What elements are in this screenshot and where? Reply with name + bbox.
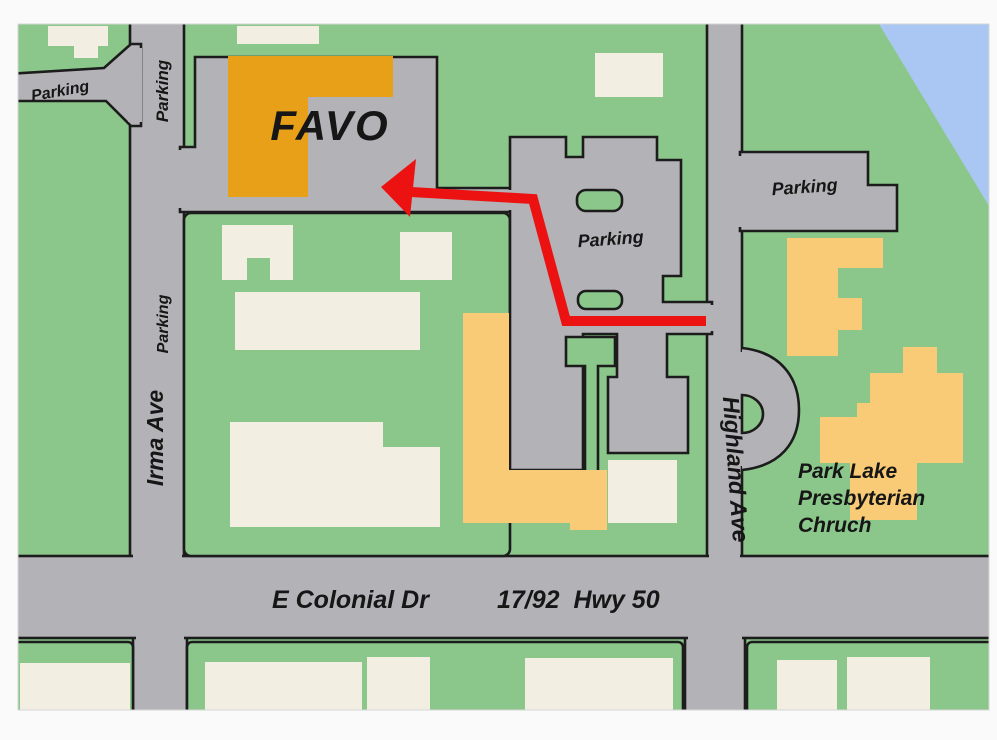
building-north-center [595,53,663,97]
building-nw-1b [74,46,98,58]
building-campus-south [608,460,677,523]
road-junction-patch [136,633,184,644]
label-church-line1: Park Lake [798,460,898,483]
label-church-line3: Chruch [798,514,872,537]
road-junction-patch [709,551,740,562]
label-parking-road-mid: Parking [155,294,172,353]
building-south-1 [20,663,130,712]
building-south-5 [777,660,837,712]
road-junction-patch [688,633,742,644]
parking-island-south [578,291,622,309]
lot-road-patch [736,156,748,227]
label-church-line2: Presbyterian [798,487,925,510]
road-junction-patch [133,551,182,562]
building-south-3 [367,657,430,712]
building-west-c [235,292,420,350]
campus-map: FAVO Parking Parking Parking Parking Par… [0,0,997,740]
label-irma-ave: Irma Ave [142,390,168,487]
label-parking-road-north: Parking [153,59,172,122]
building-west-b [400,232,452,280]
building-nw-1 [48,26,108,46]
label-hwy: 17/92 Hwy 50 [497,586,660,614]
building-south-4 [525,658,673,712]
map-screenshot: FAVO Parking Parking Parking Parking Par… [0,0,997,740]
label-e-colonial-dr: E Colonial Dr [272,586,430,614]
building-north-top [237,26,319,44]
road-junction-patch [128,48,142,122]
building-south-2 [205,662,362,712]
parking-island-north [577,190,622,211]
building-south-6 [847,657,930,712]
label-favo: FAVO [270,102,389,149]
plaza-road-patch [176,150,188,208]
